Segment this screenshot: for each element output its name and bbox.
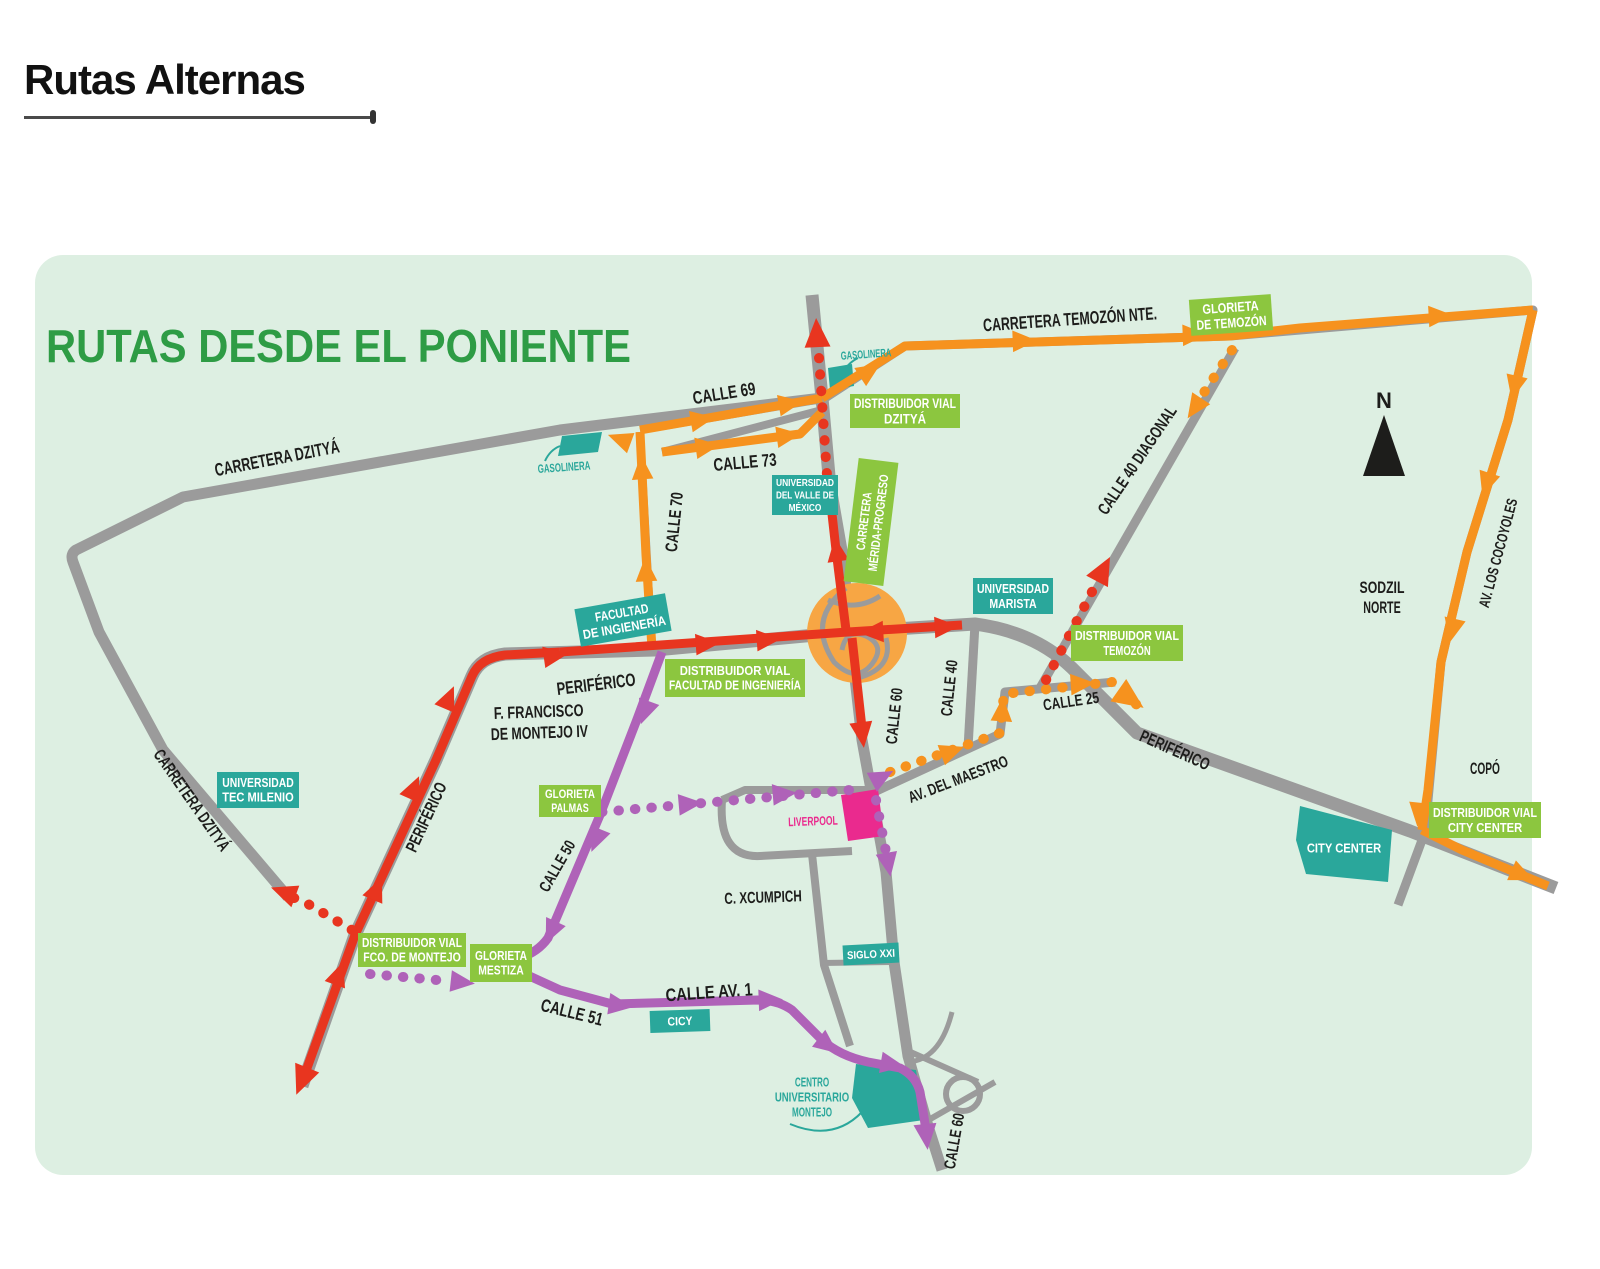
label-sodzil-norte: SODZILNORTE xyxy=(1360,578,1405,617)
label-liverpool-text: LIVERPOOL xyxy=(788,814,838,830)
badge-glorieta-mestiza-line: GLORIETA xyxy=(475,949,527,963)
badge-city-center: CITY CENTER xyxy=(1307,841,1382,856)
badge-universidad-valle-de-mexico-line: UNIVERSIDAD xyxy=(776,477,834,489)
label-copo-line: COPÓ xyxy=(1470,759,1500,778)
badge-distribuidor-vial-facultad-line: FACULTAD DE INGENIERÍA xyxy=(669,678,801,693)
badge-city-center-label: CITY CENTER xyxy=(1307,841,1382,856)
label-f-francisco-de-montejo-line: DE MONTEJO IV xyxy=(490,722,588,744)
badge-universidad-valle-de-mexico: UNIVERSIDADDEL VALLE DEMÉXICO xyxy=(772,475,838,515)
label-centro-universitario-montejo-line: MONTEJO xyxy=(792,1105,832,1120)
label-centro-universitario-montejo-line: CENTRO xyxy=(795,1075,829,1090)
label-c-xcumpich: C. XCUMPICH xyxy=(724,888,802,908)
badge-glorieta-mestiza-line: MESTIZA xyxy=(478,964,524,978)
badge-distribuidor-city-center-label: DISTRIBUIDOR VIALCITY CENTER xyxy=(1433,805,1537,835)
badge-distribuidor-vial-dzitya-line: DZITYÁ xyxy=(884,411,926,426)
badge-universidad-valle-de-mexico-line: DEL VALLE DE xyxy=(776,490,834,502)
label-copo: COPÓ xyxy=(1470,759,1500,778)
badge-universidad-tec-milenio-line: TEC MILENIO xyxy=(222,791,294,805)
label-sodzil-norte-line: NORTE xyxy=(1363,598,1400,617)
badge-glorieta-mestiza-label: GLORIETAMESTIZA xyxy=(475,949,527,978)
page-title: Rutas Alternas xyxy=(24,56,305,104)
routes-map: RUTAS DESDE EL PONIENTE GLORIETADE TEMOZ… xyxy=(0,0,1600,1269)
badge-glorieta-palmas-label: GLORIETAPALMAS xyxy=(545,787,595,815)
badge-universidad-tec-milenio-label: UNIVERSIDADTEC MILENIO xyxy=(222,776,294,805)
label-copo-text: COPÓ xyxy=(1470,759,1500,778)
badge-distribuidor-city-center-line: CITY CENTER xyxy=(1448,820,1523,835)
badge-distribuidor-city-center: DISTRIBUIDOR VIALCITY CENTER xyxy=(1429,802,1541,838)
badge-glorieta-palmas-line: GLORIETA xyxy=(545,787,595,801)
badge-universidad-marista-line: MARISTA xyxy=(989,596,1037,611)
badge-glorieta-de-temozon: GLORIETADE TEMOZÓN xyxy=(1189,294,1273,336)
title-underline-cap xyxy=(370,110,376,124)
badge-glorieta-palmas: GLORIETAPALMAS xyxy=(539,785,601,817)
badge-glorieta-de-temozon-label: GLORIETADE TEMOZÓN xyxy=(1195,298,1267,333)
badge-universidad-valle-de-mexico-line: MÉXICO xyxy=(789,501,822,514)
badge-siglo-xxi-line: SIGLO XXI xyxy=(847,948,896,962)
map-title: RUTAS DESDE EL PONIENTE xyxy=(46,320,631,372)
map-background xyxy=(35,255,1532,1175)
compass-north-label: N xyxy=(1376,388,1392,413)
badge-universidad-marista-line: UNIVERSIDAD xyxy=(977,581,1049,596)
badge-distribuidor-fco-montejo-line: FCO. DE MONTEJO xyxy=(363,951,461,965)
label-c-xcumpich-text: C. XCUMPICH xyxy=(724,888,802,908)
badge-distribuidor-fco-montejo-line: DISTRIBUIDOR VIAL xyxy=(362,936,462,950)
label-f-francisco-de-montejo-line: F. FRANCISCO xyxy=(493,701,583,723)
badge-distribuidor-vial-dzitya: DISTRIBUIDOR VIALDZITYÁ xyxy=(850,394,960,428)
badge-city-center-line: CITY CENTER xyxy=(1307,841,1382,856)
badge-universidad-tec-milenio-line: UNIVERSIDAD xyxy=(222,776,294,790)
label-sodzil-norte-line: SODZIL xyxy=(1360,578,1405,597)
label-sodzil-norte-text: SODZILNORTE xyxy=(1360,578,1405,617)
title-underline xyxy=(24,116,370,119)
badge-distribuidor-vial-facultad-label: DISTRIBUIDOR VIALFACULTAD DE INGENIERÍA xyxy=(669,664,801,693)
page: Rutas Alternas RUTAS DESDE EL PONIENTE G… xyxy=(0,0,1600,1269)
badge-distribuidor-fco-montejo-label: DISTRIBUIDOR VIALFCO. DE MONTEJO xyxy=(362,936,462,965)
badge-distribuidor-fco-montejo: DISTRIBUIDOR VIALFCO. DE MONTEJO xyxy=(358,933,466,967)
badge-distribuidor-vial-facultad: DISTRIBUIDOR VIALFACULTAD DE INGENIERÍA xyxy=(665,659,805,697)
label-liverpool: LIVERPOOL xyxy=(788,814,838,830)
badge-universidad-marista: UNIVERSIDADMARISTA xyxy=(973,578,1053,614)
badge-glorieta-mestiza: GLORIETAMESTIZA xyxy=(470,944,532,982)
label-centro-universitario-montejo-line: UNIVERSITARIO xyxy=(775,1090,849,1105)
badge-distribuidor-vial-dzitya-line: DISTRIBUIDOR VIAL xyxy=(854,396,956,411)
badge-distribuidor-vial-facultad-line: DISTRIBUIDOR VIAL xyxy=(680,664,791,678)
badge-distribuidor-city-center-line: DISTRIBUIDOR VIAL xyxy=(1433,805,1537,820)
badge-cicy-line: CICY xyxy=(667,1014,692,1029)
badge-cicy: CICY xyxy=(650,1009,711,1033)
badge-glorieta-palmas-line: PALMAS xyxy=(551,801,588,815)
label-liverpool-line: LIVERPOOL xyxy=(788,814,838,830)
label-c-xcumpich-line: C. XCUMPICH xyxy=(724,888,802,908)
badge-distribuidor-vial-temozon-line: TEMOZÓN xyxy=(1103,643,1150,658)
badge-universidad-tec-milenio: UNIVERSIDADTEC MILENIO xyxy=(217,772,299,808)
badge-cicy-label: CICY xyxy=(667,1014,692,1029)
badge-siglo-xxi: SIGLO XXI xyxy=(843,943,900,966)
badge-distribuidor-vial-temozon: DISTRIBUIDOR VIALTEMOZÓN xyxy=(1071,625,1183,661)
badge-distribuidor-vial-temozon-line: DISTRIBUIDOR VIAL xyxy=(1075,628,1179,643)
badge-siglo-xxi-label: SIGLO XXI xyxy=(847,948,896,962)
